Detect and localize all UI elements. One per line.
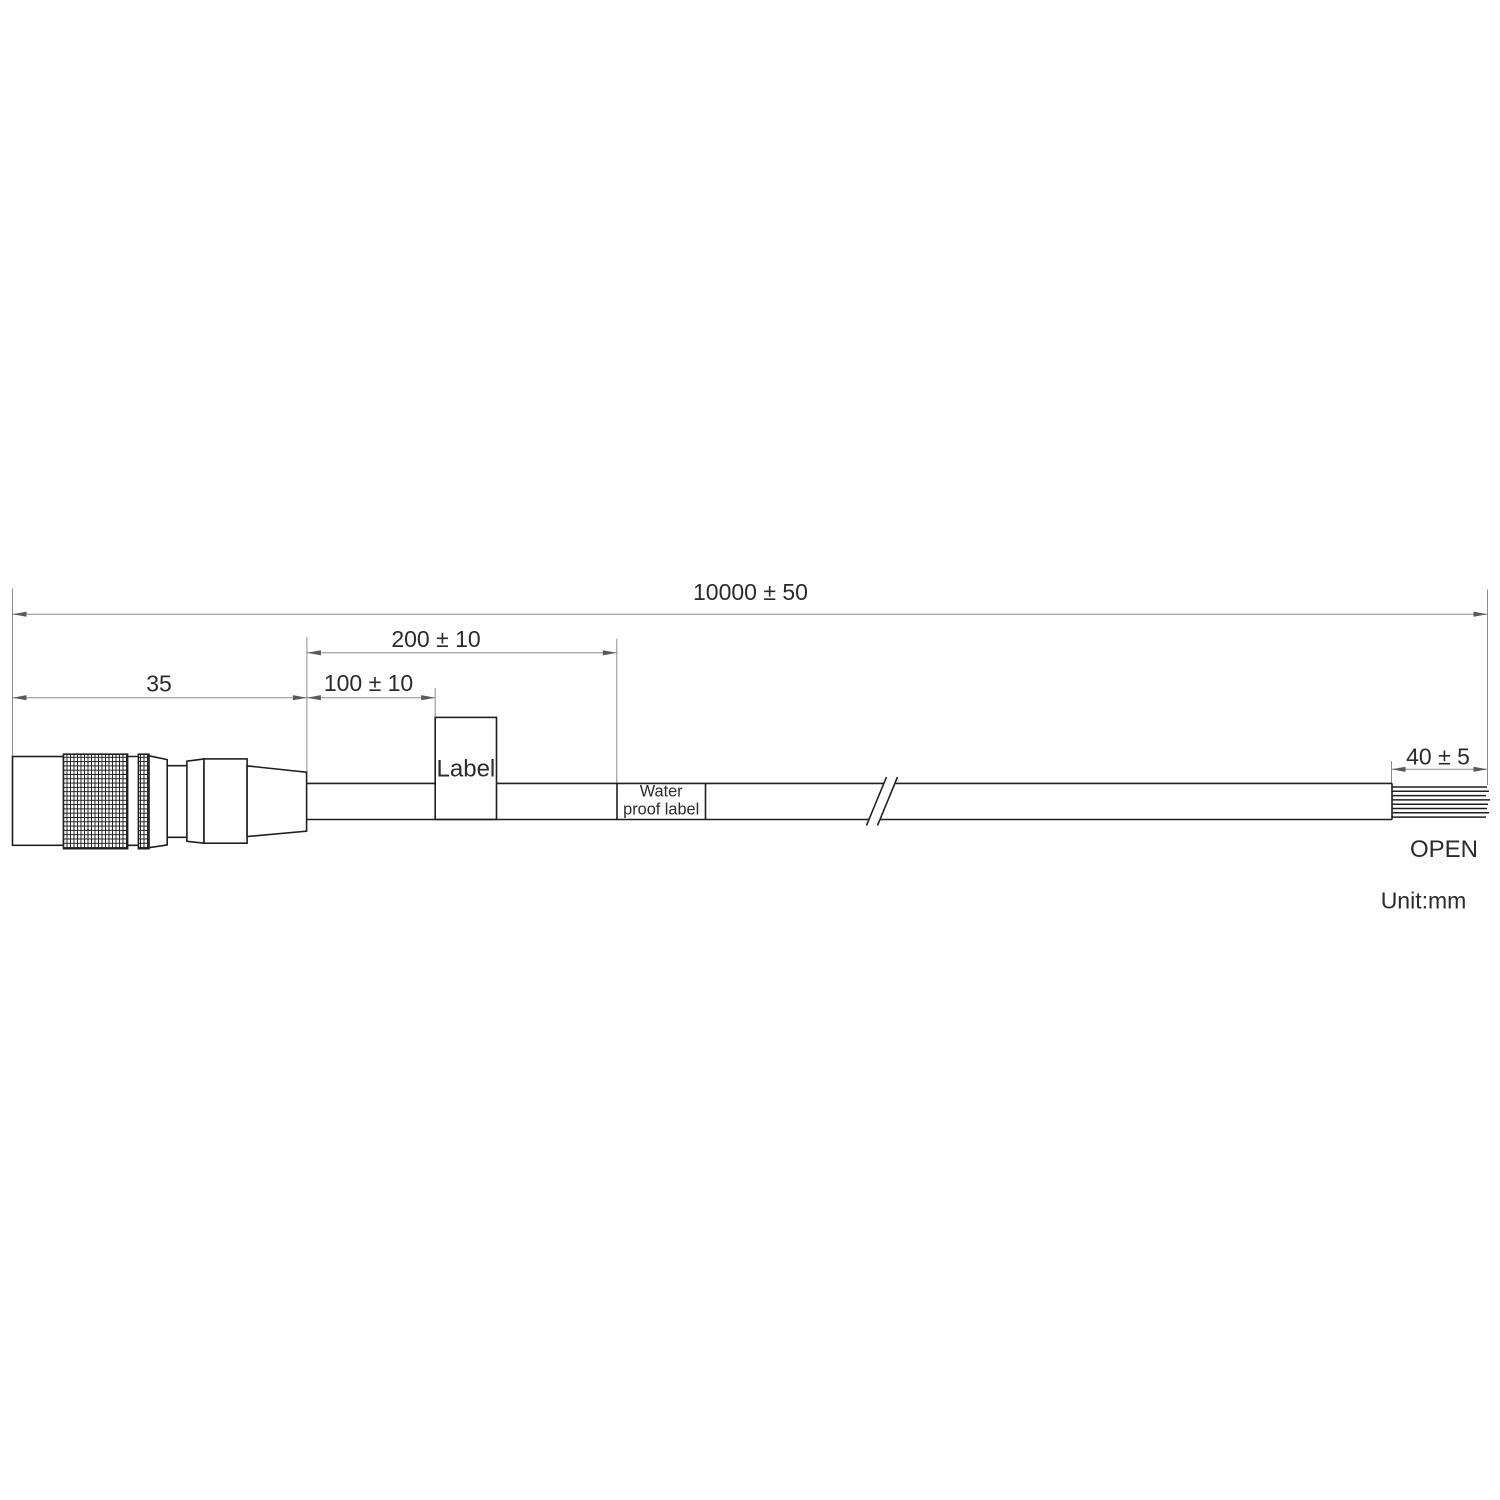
svg-text:Water: Water (640, 783, 683, 801)
svg-text:200 ± 10: 200 ± 10 (391, 626, 480, 652)
svg-text:40 ± 5: 40 ± 5 (1406, 743, 1470, 769)
svg-text:10000 ± 50: 10000 ± 50 (693, 579, 808, 605)
svg-text:100 ± 10: 100 ± 10 (324, 670, 413, 696)
svg-text:OPEN: OPEN (1410, 836, 1478, 863)
svg-text:35: 35 (146, 671, 172, 697)
svg-text:Label: Label (437, 756, 496, 783)
svg-text:Unit:mm: Unit:mm (1381, 887, 1467, 913)
svg-text:proof label: proof label (623, 800, 699, 818)
